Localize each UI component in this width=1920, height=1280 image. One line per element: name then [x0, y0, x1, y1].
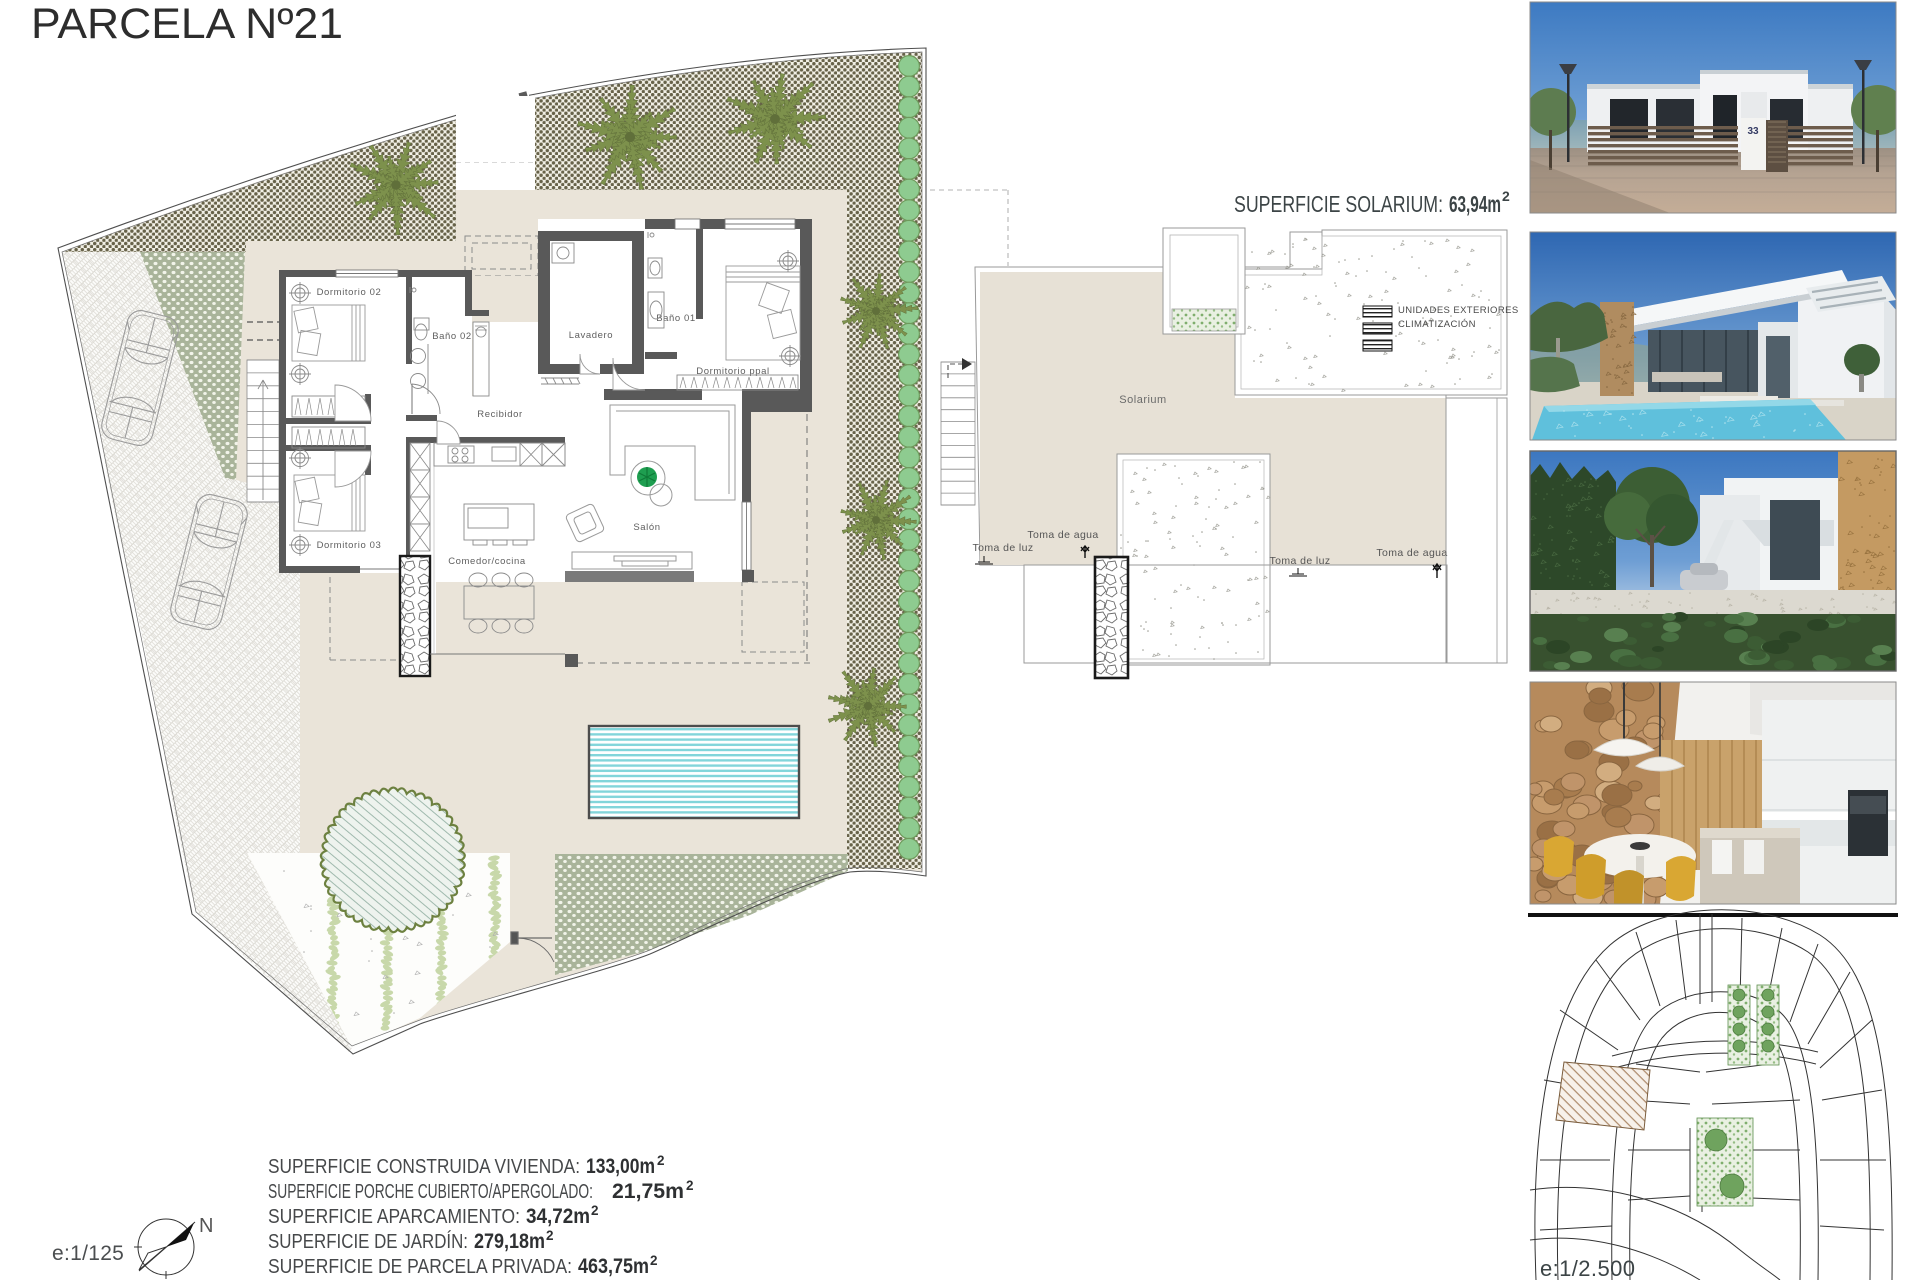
svg-text:Recibidor: Recibidor — [477, 409, 523, 420]
svg-text:2: 2 — [546, 1228, 554, 1243]
svg-text:463,75m: 463,75m — [578, 1255, 649, 1278]
svg-text:133,00m: 133,00m — [586, 1155, 655, 1178]
svg-text:SUPERFICIE DE JARDÍN:: SUPERFICIE DE JARDÍN: — [268, 1230, 468, 1253]
svg-text:Solarium: Solarium — [1119, 394, 1166, 406]
svg-text:SUPERFICIE APARCAMIENTO:: SUPERFICIE APARCAMIENTO: — [268, 1205, 520, 1228]
svg-text:Toma de luz: Toma de luz — [1269, 555, 1330, 567]
svg-text:UNIDADES EXTERIORES: UNIDADES EXTERIORES — [1398, 305, 1519, 316]
svg-text:34,72m: 34,72m — [526, 1205, 590, 1228]
svg-text:Toma de agua: Toma de agua — [1027, 529, 1098, 541]
svg-text:Salón: Salón — [633, 522, 660, 533]
svg-text:PARCELA Nº21: PARCELA Nº21 — [31, 0, 343, 48]
svg-text:Lavadero: Lavadero — [569, 330, 613, 341]
svg-text:e:1/2.500: e:1/2.500 — [1540, 1256, 1635, 1280]
svg-text:CLIMATIZACIÓN: CLIMATIZACIÓN — [1398, 319, 1476, 330]
svg-text:2: 2 — [591, 1203, 599, 1218]
svg-text:Dormitorio 02: Dormitorio 02 — [317, 287, 382, 298]
svg-text:Baño 01: Baño 01 — [656, 313, 696, 324]
svg-text:2: 2 — [1502, 188, 1510, 204]
svg-text:Toma de luz: Toma de luz — [972, 542, 1033, 554]
svg-text:33: 33 — [1747, 126, 1759, 137]
svg-text:SUPERFICIE PORCHE CUBIERTO/APE: SUPERFICIE PORCHE CUBIERTO/APERGOLADO: — [268, 1180, 593, 1203]
svg-text:279,18m: 279,18m — [474, 1230, 545, 1253]
svg-text:63,94m: 63,94m — [1449, 191, 1501, 217]
svg-text:21,75m: 21,75m — [612, 1180, 684, 1203]
svg-text:2: 2 — [650, 1253, 658, 1268]
svg-text:Baño 02: Baño 02 — [432, 331, 472, 342]
svg-text:e:1/125: e:1/125 — [52, 1242, 124, 1265]
svg-text:Dormitorio 03: Dormitorio 03 — [317, 540, 382, 551]
svg-text:SUPERFICIE SOLARIUM:: SUPERFICIE SOLARIUM: — [1234, 191, 1443, 217]
svg-text:Toma de agua: Toma de agua — [1376, 547, 1447, 559]
svg-text:Comedor/cocina: Comedor/cocina — [448, 556, 526, 567]
svg-text:SUPERFICIE DE PARCELA PRIVADA:: SUPERFICIE DE PARCELA PRIVADA: — [268, 1255, 572, 1278]
svg-text:2: 2 — [657, 1153, 665, 1168]
svg-text:2: 2 — [686, 1178, 694, 1193]
svg-text:SUPERFICIE CONSTRUIDA VIVIENDA: SUPERFICIE CONSTRUIDA VIVIENDA: — [268, 1155, 580, 1178]
svg-text:N: N — [199, 1215, 213, 1237]
